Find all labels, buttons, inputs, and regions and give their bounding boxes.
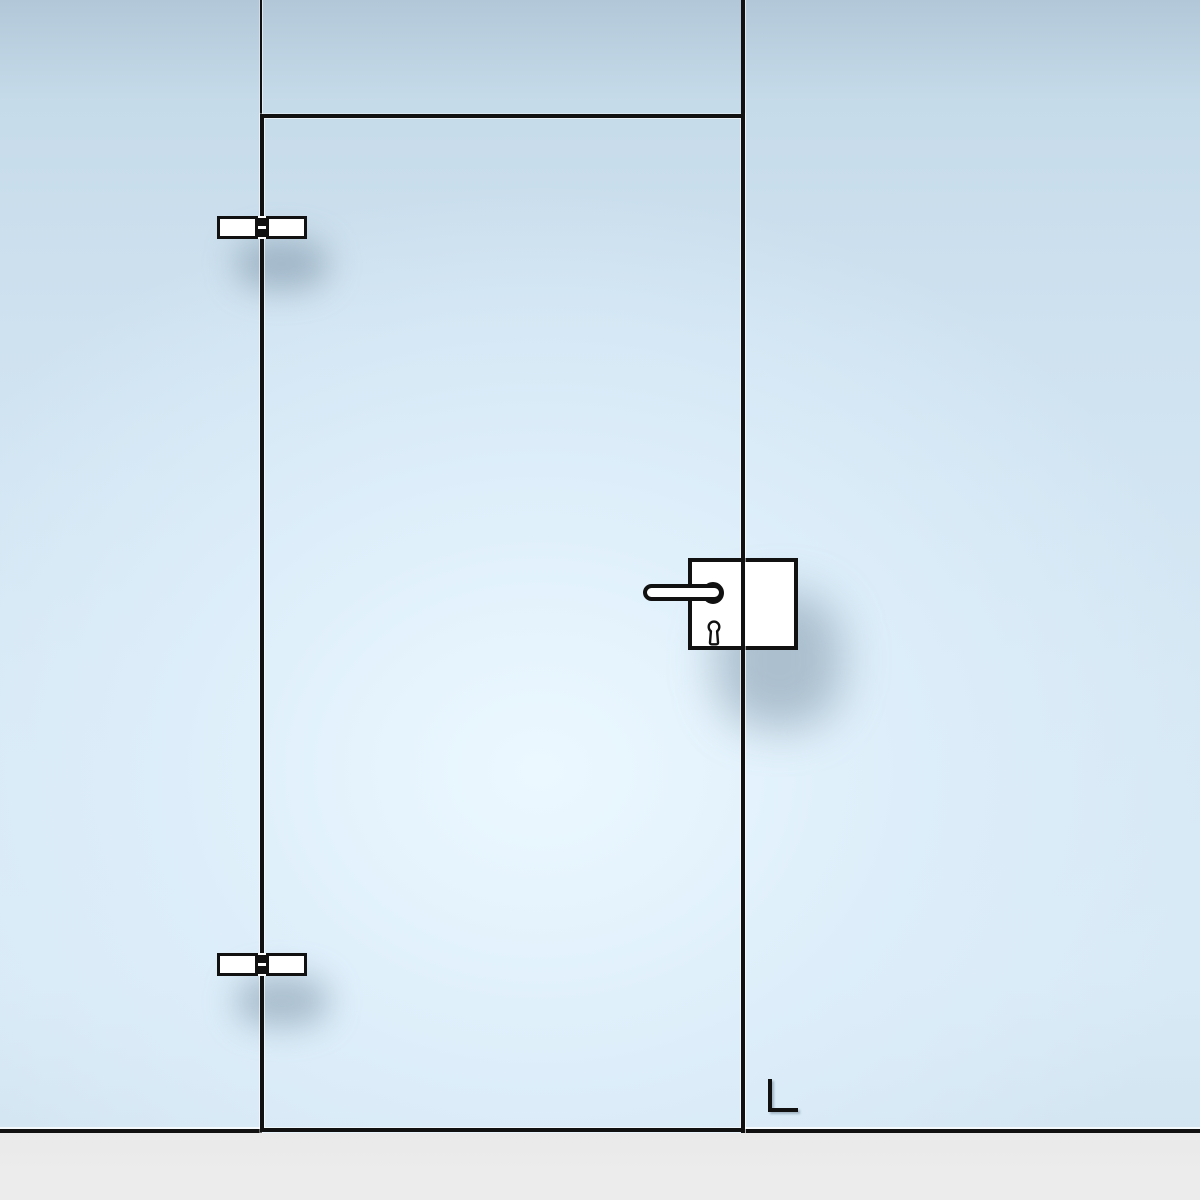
hinge-pin <box>257 966 267 974</box>
hinge-plate-wall <box>217 953 258 976</box>
door-leaf <box>260 114 745 1132</box>
door-stop-marker <box>768 1079 798 1112</box>
hinge-pin <box>257 955 267 963</box>
hinge-pin <box>257 218 267 226</box>
keyhole-icon <box>704 620 724 648</box>
hinge-plate-door <box>266 953 307 976</box>
left-panel-bottom-edge <box>0 1129 261 1133</box>
floor <box>0 1133 1200 1200</box>
lever-handle <box>643 584 723 601</box>
bottom-hinge <box>217 953 307 976</box>
right-panel-bottom-edge <box>745 1129 1200 1133</box>
hinge-plate-door <box>266 216 307 239</box>
glass-door-preview <box>0 0 1200 1200</box>
hinge-plate-wall <box>217 216 258 239</box>
right-glass-joint-line <box>741 0 745 1133</box>
hinge-pin <box>257 229 267 237</box>
top-hinge <box>217 216 307 239</box>
